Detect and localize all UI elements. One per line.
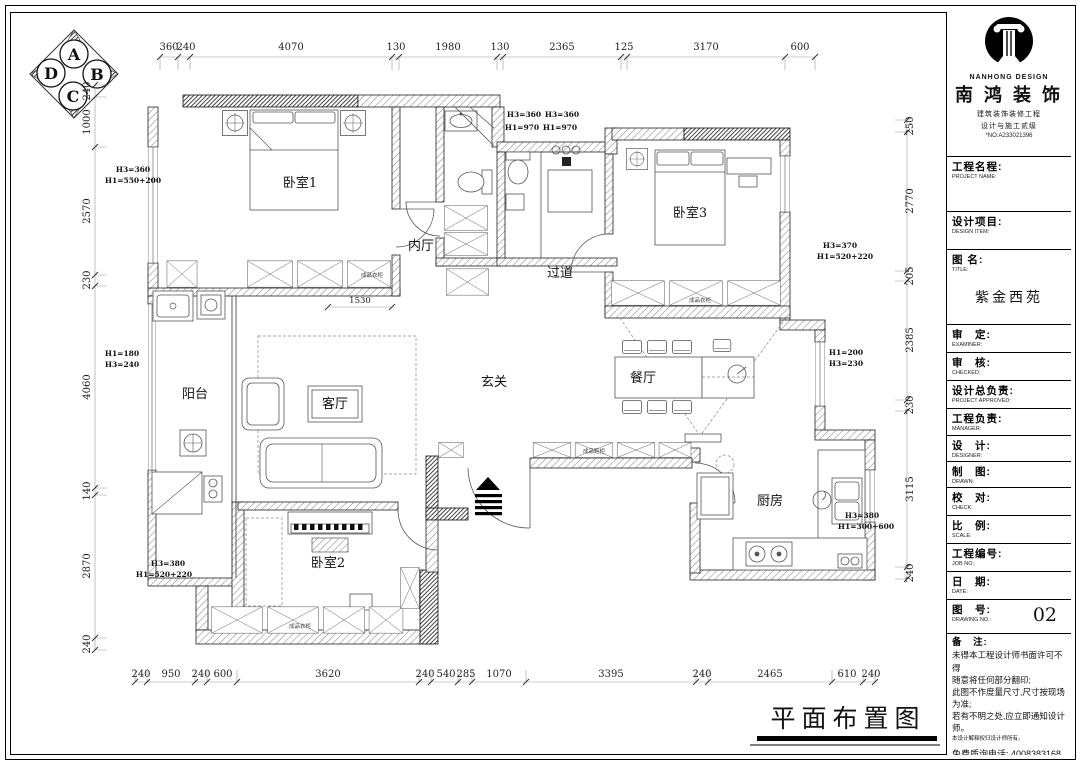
wardrobe-label: 成品衣柜 bbox=[689, 296, 712, 304]
annotation: H1=970 bbox=[543, 123, 577, 132]
dim: 285 bbox=[456, 669, 475, 680]
nightstand-icon bbox=[223, 111, 248, 136]
annotation: H3=240 bbox=[105, 360, 139, 369]
field-label: 校 对: bbox=[952, 490, 1066, 505]
dim: 3620 bbox=[315, 669, 340, 680]
nightstand-icon bbox=[626, 148, 647, 169]
laundry-bath-furniture bbox=[506, 146, 592, 258]
room-label-corridor: 过道 bbox=[547, 266, 573, 281]
compass-n: A bbox=[67, 45, 81, 64]
annotation: H3=380 bbox=[151, 559, 185, 568]
field-design-item: 设计项目: DESIGN ITEM: bbox=[947, 212, 1071, 250]
field-label: 比 例: bbox=[952, 518, 1066, 533]
field-sublabel: DRAWN: bbox=[952, 479, 1066, 485]
field-project-approved: 设计总负责: PROJECT APPROVED: bbox=[947, 381, 1071, 409]
dim: 1000 bbox=[82, 109, 93, 134]
note-line: 为准; bbox=[952, 698, 1066, 710]
brand-license-no: *NO:A233021396 bbox=[952, 133, 1066, 139]
field-label: 工程负责: bbox=[952, 411, 1066, 426]
dim: 205 bbox=[905, 266, 916, 285]
room-label-dining: 餐厅 bbox=[630, 370, 656, 386]
field-project-name: 工程名程: PROJECT NAME: bbox=[947, 157, 1071, 212]
field-check: 校 对: CHECK: bbox=[947, 488, 1071, 516]
note-small: 本设计解释权归设计师所有。 bbox=[952, 736, 1066, 744]
kitchen-furniture bbox=[697, 450, 867, 570]
annotation: H3=360 bbox=[545, 110, 579, 119]
notes-section: 备 注: 未得本工程设计师书面许可不得 随意将任何部分翻印; 此图不作度量尺寸,… bbox=[947, 634, 1071, 755]
dim: 540 bbox=[436, 669, 455, 680]
dim: 240 bbox=[191, 669, 210, 680]
dim: 1980 bbox=[435, 42, 460, 53]
room-label-inner-hall: 内厅 bbox=[408, 238, 434, 254]
field-sublabel: JOB NO.: bbox=[952, 561, 1066, 567]
dimensions-bottom: 240 950 240 600 3620 240 540 285 1070 33… bbox=[131, 669, 880, 685]
note-line: 师。 bbox=[952, 722, 1066, 734]
dim: 2385 bbox=[905, 327, 916, 352]
field-scale: 比 例: SCALE: bbox=[947, 516, 1071, 544]
field-sublabel: MANAGER: bbox=[952, 426, 1066, 432]
shoe-cabinet-label: 成品鞋柜 bbox=[583, 447, 606, 455]
field-date: 日 期: DATE: bbox=[947, 572, 1071, 600]
field-sublabel: PROJECT NAME: bbox=[952, 174, 1066, 180]
drawing-title: 平面布置图 bbox=[750, 704, 940, 745]
master-bath-furniture bbox=[444, 107, 494, 255]
dim: 600 bbox=[790, 42, 809, 53]
annotation: H1=200 bbox=[829, 348, 863, 357]
dim: 240 bbox=[905, 563, 916, 582]
dim: 950 bbox=[161, 669, 180, 680]
note-line: 随意将任何部分翻印; bbox=[952, 674, 1066, 686]
brand-sub1: 建筑装饰装修工程 bbox=[952, 109, 1066, 119]
field-sublabel: DESIGNER: bbox=[952, 453, 1066, 459]
dim: 1070 bbox=[486, 669, 511, 680]
dim: 250 bbox=[905, 116, 916, 135]
dim: 240 bbox=[176, 42, 195, 53]
wardrobe-label: 成品衣柜 bbox=[361, 271, 384, 279]
notes-title: 备 注: bbox=[952, 636, 1066, 649]
annotation: H3=360 bbox=[507, 110, 541, 119]
field-sublabel: EXAMINER: bbox=[952, 342, 1066, 348]
company-header: NANHONG DESIGN 南 鸿 装 饰 建筑装饰装修工程 设计与施工贰级 … bbox=[947, 12, 1071, 157]
brand-name-en: NANHONG DESIGN bbox=[952, 74, 1066, 81]
room-label-living: 客厅 bbox=[322, 396, 348, 412]
dim: 240 bbox=[415, 669, 434, 680]
dim: 2365 bbox=[549, 42, 574, 53]
room-label-bedroom1: 卧室1 bbox=[283, 175, 317, 191]
windows bbox=[148, 147, 875, 578]
dim: 240 bbox=[82, 81, 93, 100]
annotation: H1=970 bbox=[505, 123, 539, 132]
compass-s: C bbox=[67, 87, 80, 106]
annotation: H3=230 bbox=[829, 359, 863, 368]
annotation: H1=550+200 bbox=[105, 176, 161, 185]
field-label: 工程名程: bbox=[952, 159, 1066, 174]
room-label-bedroom3: 卧室3 bbox=[673, 205, 707, 221]
dim: 4070 bbox=[278, 42, 303, 53]
field-examiner: 审 定: EXAMINER: bbox=[947, 325, 1071, 353]
dim: 240 bbox=[131, 669, 150, 680]
balcony-furniture bbox=[152, 291, 225, 514]
dim: 3115 bbox=[905, 476, 916, 501]
room-label-kitchen: 厨房 bbox=[757, 493, 783, 509]
note-line: 此图不作度量尺寸,尺寸按现场 bbox=[952, 686, 1066, 698]
field-sublabel: CHECK: bbox=[952, 505, 1066, 511]
field-label: 审 核: bbox=[952, 355, 1066, 370]
field-label: 设计总负责: bbox=[952, 383, 1066, 398]
field-label: 设计项目: bbox=[952, 214, 1066, 229]
dimensions-top: 360 240 4070 130 1980 130 2365 125 3170 … bbox=[157, 42, 818, 70]
compass-w: D bbox=[44, 64, 58, 83]
annotation: H1=300+600 bbox=[838, 522, 894, 531]
field-label: 制 图: bbox=[952, 464, 1066, 479]
field-sublabel: CHECKED: bbox=[952, 370, 1066, 376]
inner-dimension: 1530 bbox=[325, 296, 395, 310]
dim: 130 bbox=[490, 42, 509, 53]
field-title: 图 名: TITLE: 紫金西苑 bbox=[947, 250, 1071, 325]
annotation: H3=380 bbox=[845, 511, 879, 520]
brand-name-cn: 南 鸿 装 饰 bbox=[952, 81, 1066, 107]
dim: 3170 bbox=[693, 42, 718, 53]
dim: 230 bbox=[905, 395, 916, 414]
dim: 600 bbox=[213, 669, 232, 680]
room-label-balcony: 阳台 bbox=[182, 387, 208, 402]
annotation: H1=520+220 bbox=[136, 570, 192, 579]
bedroom1-furniture bbox=[167, 110, 391, 287]
floor-plan-drawing: A B C D bbox=[0, 0, 945, 764]
drawing-no-value: 02 bbox=[1033, 604, 1057, 626]
annotation: H3=370 bbox=[823, 241, 857, 250]
field-label: 设 计: bbox=[952, 438, 1066, 453]
dim: 2870 bbox=[82, 553, 93, 578]
field-sublabel: PROJECT APPROVED: bbox=[952, 398, 1066, 404]
compass-e: B bbox=[90, 65, 104, 84]
field-drawn: 制 图: DRAWN: bbox=[947, 462, 1071, 488]
dim: 240 bbox=[692, 669, 711, 680]
dim: 240 bbox=[861, 669, 880, 680]
dim: 240 bbox=[82, 634, 93, 653]
field-checked: 审 核: CHECKED: bbox=[947, 353, 1071, 381]
field-sublabel: TITLE: bbox=[952, 267, 1066, 273]
field-label: 日 期: bbox=[952, 574, 1066, 589]
company-logo-icon bbox=[982, 16, 1036, 68]
dim: 610 bbox=[837, 669, 856, 680]
note-line: 若有不明之处,应立即通知设计 bbox=[952, 710, 1066, 722]
dim: 130 bbox=[386, 42, 405, 53]
dim: 4060 bbox=[82, 374, 93, 399]
field-label: 工程编号: bbox=[952, 546, 1066, 561]
annotation: H3=360 bbox=[116, 165, 150, 174]
dim: 1530 bbox=[349, 296, 371, 306]
field-label: 图 名: bbox=[952, 252, 1066, 267]
dimensions-right: 250 2770 205 2385 230 3115 240 bbox=[895, 116, 916, 582]
annotation: H1=180 bbox=[105, 349, 139, 358]
dim: 2770 bbox=[905, 188, 916, 213]
dim: 2570 bbox=[82, 198, 93, 223]
project-title-value: 紫金西苑 bbox=[952, 287, 1066, 307]
field-job-no: 工程编号: JOB NO.: bbox=[947, 544, 1071, 572]
dim: 230 bbox=[82, 270, 93, 289]
drawing-title-text: 平面布置图 bbox=[770, 704, 925, 733]
field-manager: 工程负责: MANAGER: bbox=[947, 409, 1071, 436]
dimensions-left: 240 1000 2570 230 4060 140 2870 240 bbox=[82, 81, 107, 653]
field-sublabel: SCALE: bbox=[952, 533, 1066, 539]
phone-line: 免费质询电话: 4008383168 bbox=[952, 748, 1066, 755]
dim: 2465 bbox=[757, 669, 782, 680]
dim: 125 bbox=[614, 42, 633, 53]
field-sublabel: DESIGN ITEM: bbox=[952, 229, 1066, 235]
brand-sub2: 设计与施工贰级 bbox=[952, 121, 1066, 131]
floor-plan-page: A B C D bbox=[0, 0, 1080, 764]
room-label-entry: 玄关 bbox=[481, 375, 507, 390]
living-room-furniture bbox=[242, 336, 416, 488]
annotation: H1=520+220 bbox=[817, 252, 873, 261]
title-block: NANHONG DESIGN 南 鸿 装 饰 建筑装饰装修工程 设计与施工贰级 … bbox=[946, 12, 1071, 755]
wardrobe-label: 成品衣柜 bbox=[289, 622, 312, 630]
nightstand-icon bbox=[341, 111, 366, 136]
field-drawing-no: 图 号: DRAWING NO.: 02 bbox=[947, 600, 1071, 634]
dim: 140 bbox=[82, 481, 93, 500]
field-sublabel: DATE: bbox=[952, 589, 1066, 595]
field-designer: 设 计: DESIGNER: bbox=[947, 436, 1071, 462]
note-line: 未得本工程设计师书面许可不得 bbox=[952, 649, 1066, 673]
field-label: 审 定: bbox=[952, 327, 1066, 342]
compass-icon: A B C D bbox=[30, 30, 118, 118]
room-label-bedroom2: 卧室2 bbox=[311, 555, 345, 571]
dim: 3395 bbox=[598, 669, 623, 680]
